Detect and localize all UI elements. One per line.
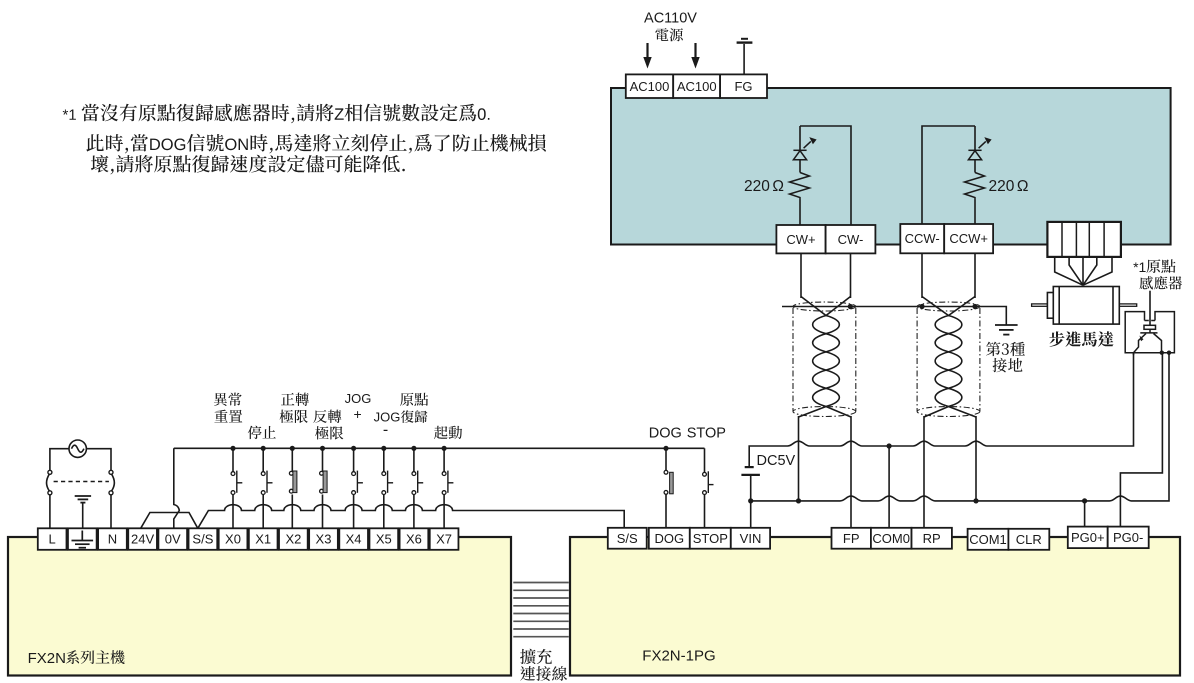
svg-text:STOP: STOP xyxy=(693,531,728,546)
svg-text:X3: X3 xyxy=(316,532,332,547)
svg-text:24V: 24V xyxy=(131,532,154,547)
svg-text:220Ω: 220Ω xyxy=(744,178,784,195)
svg-text:X7: X7 xyxy=(436,532,452,547)
svg-text:DOG: DOG xyxy=(649,425,682,441)
svg-text:RP: RP xyxy=(923,531,941,546)
svg-text:*1: *1 xyxy=(1133,259,1146,275)
svg-text:COM1: COM1 xyxy=(969,532,1007,547)
svg-text:N: N xyxy=(108,532,117,547)
svg-text:JOG: JOG xyxy=(345,391,372,406)
svg-text:S/S: S/S xyxy=(192,532,213,547)
svg-text:FP: FP xyxy=(843,531,860,546)
svg-text:X6: X6 xyxy=(406,532,422,547)
svg-text:COM0: COM0 xyxy=(872,531,910,546)
svg-text:VIN: VIN xyxy=(740,531,762,546)
svg-text:AC100: AC100 xyxy=(677,79,717,94)
svg-text:CW-: CW- xyxy=(838,232,864,247)
svg-text:PG0-: PG0- xyxy=(1113,530,1143,545)
svg-text:X0: X0 xyxy=(225,532,241,547)
svg-text:S/S: S/S xyxy=(617,531,638,546)
svg-text:X1: X1 xyxy=(255,532,271,547)
svg-text:220Ω: 220Ω xyxy=(989,178,1029,195)
svg-text:X2: X2 xyxy=(285,532,301,547)
svg-text:AC110V: AC110V xyxy=(644,11,697,27)
svg-text:FX2N-1PG: FX2N-1PG xyxy=(642,647,715,664)
svg-text:DOG: DOG xyxy=(654,531,684,546)
svg-text:+: + xyxy=(354,406,362,422)
svg-text:L: L xyxy=(48,532,55,547)
svg-text:STOP: STOP xyxy=(687,425,726,441)
svg-text:DC5V: DC5V xyxy=(757,453,796,469)
svg-text:CW+: CW+ xyxy=(786,232,815,247)
svg-text:FG: FG xyxy=(734,79,752,94)
svg-text:CCW+: CCW+ xyxy=(949,231,988,246)
svg-text:X4: X4 xyxy=(346,532,362,547)
svg-text:-: - xyxy=(383,422,388,439)
svg-text:0V: 0V xyxy=(165,532,181,547)
svg-text:FX2N: FX2N xyxy=(28,650,66,667)
svg-text:AC100: AC100 xyxy=(630,79,670,94)
svg-text:X5: X5 xyxy=(376,532,392,547)
svg-text:PG0+: PG0+ xyxy=(1071,530,1105,545)
svg-text:CCW-: CCW- xyxy=(905,231,940,246)
svg-text:CLR: CLR xyxy=(1016,532,1042,547)
